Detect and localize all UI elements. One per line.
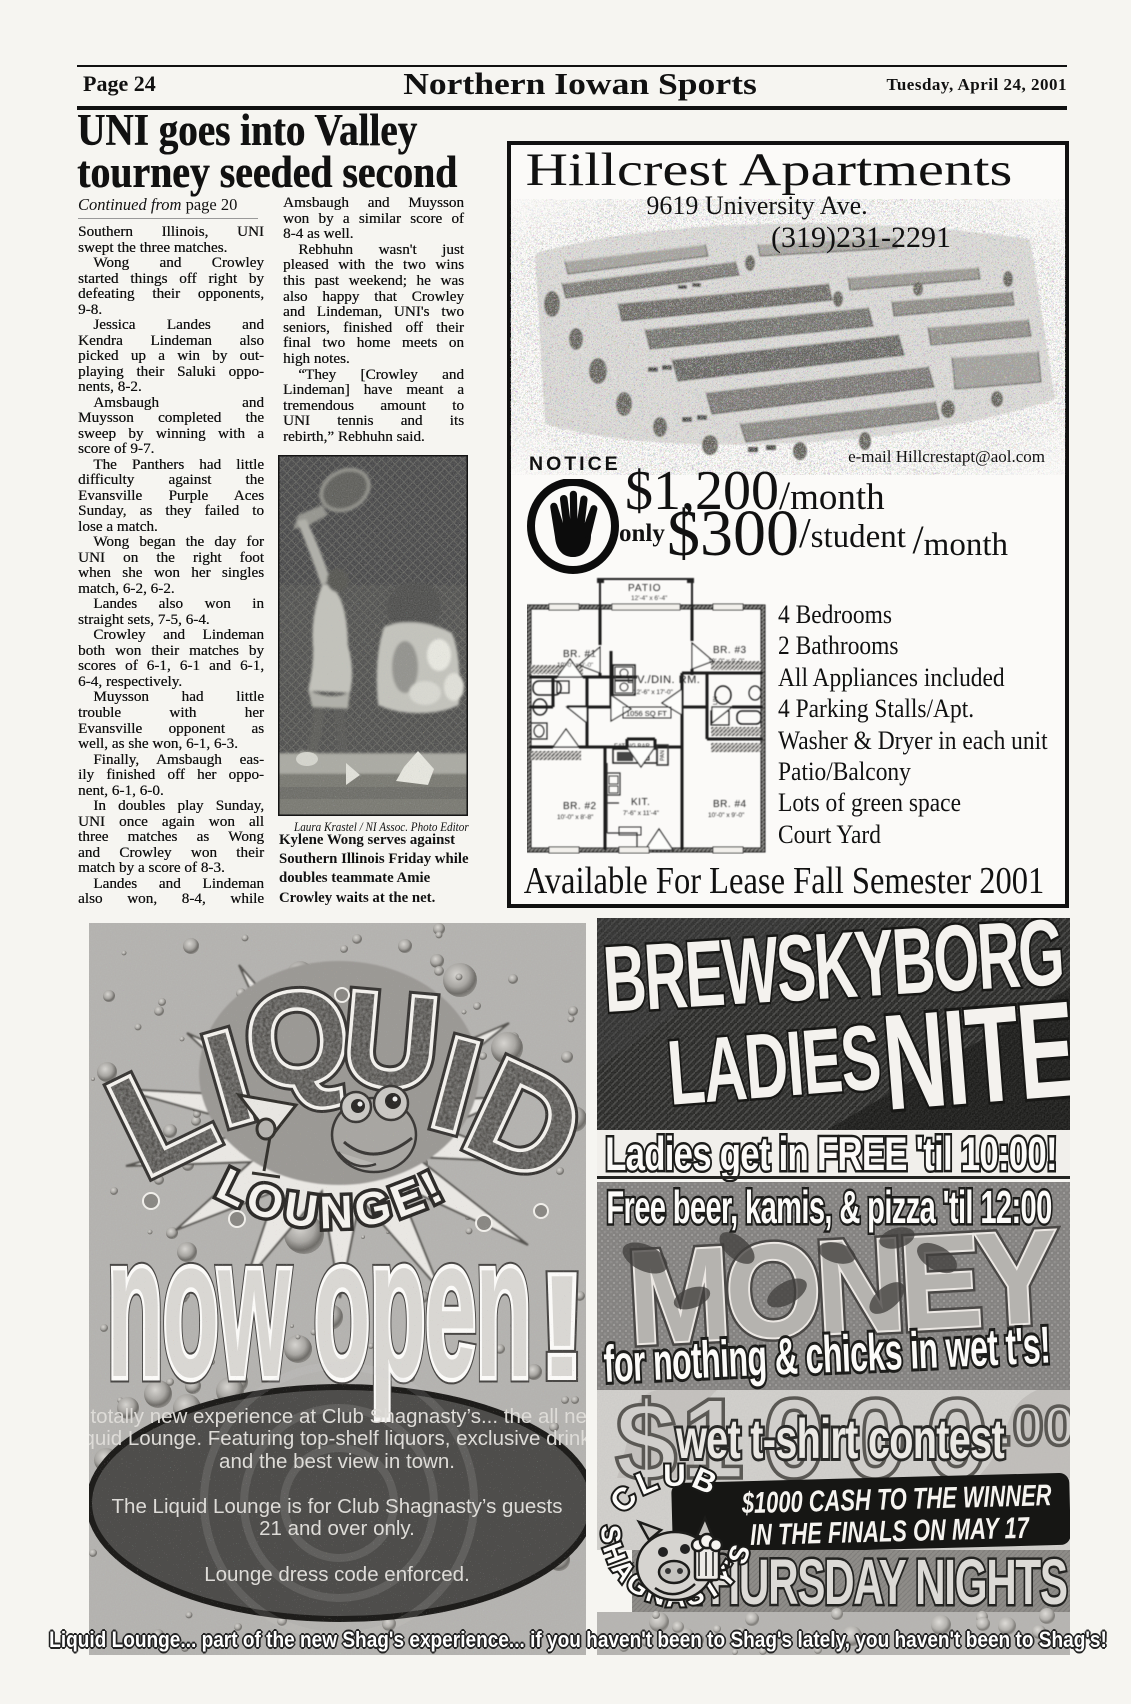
svg-text:PATIO: PATIO [628, 583, 662, 594]
svg-text:PAN: PAN [660, 750, 666, 761]
svg-text:BR. #4: BR. #4 [713, 799, 747, 810]
svg-text:BR. #2: BR. #2 [563, 801, 597, 812]
svg-text:KIT.: KIT. [631, 797, 650, 808]
svg-text:10'-0" x 8'-8": 10'-0" x 8'-8" [557, 814, 594, 821]
svg-text:10'-0" x 9'-0": 10'-0" x 9'-0" [708, 812, 745, 819]
svg-text:LADIES: LADIES [664, 1007, 883, 1125]
svg-text:Ladies get in FREE 'til 10:00!: Ladies get in FREE 'til 10:00! [605, 1128, 1057, 1180]
svg-text:10'-0" x 9'-0": 10'-0" x 9'-0" [557, 662, 594, 669]
svg-text:BR. #3: BR. #3 [713, 645, 747, 656]
svg-text:1056 SQ FT: 1056 SQ FT [626, 709, 667, 718]
svg-text:IN THE FINALS ON MAY 17: IN THE FINALS ON MAY 17 [750, 1510, 1031, 1552]
svg-text:LIV./DIN. RM.: LIV./DIN. RM. [627, 674, 700, 686]
svg-text:.00: .00 [997, 1394, 1070, 1457]
svg-text:7'-6" x 11'-4": 7'-6" x 11'-4" [623, 810, 660, 817]
svg-text:10'-0" x 9'-0": 10'-0" x 9'-0" [708, 658, 745, 665]
svg-text:NITE: NITE [878, 974, 1070, 1140]
svg-text:wet t-shirt contest: wet t-shirt contest [675, 1408, 1004, 1470]
svg-text:12'-4" x 6'-4": 12'-4" x 6'-4" [631, 595, 668, 602]
svg-text:12'-6" x 17'-0": 12'-6" x 17'-0" [633, 689, 674, 696]
svg-text:LIN: LIN [713, 696, 719, 705]
svg-text:BR. #1: BR. #1 [563, 649, 597, 660]
